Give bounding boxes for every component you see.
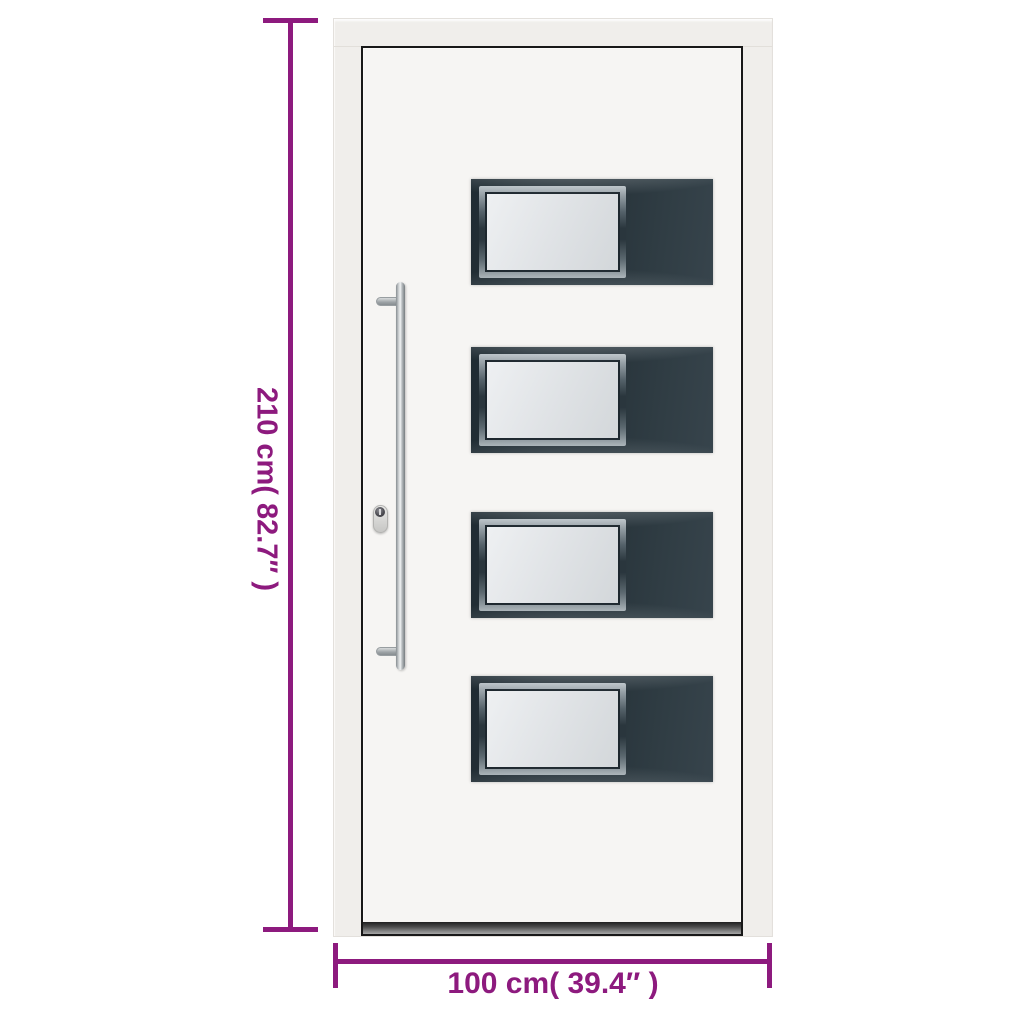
door-glass-panel xyxy=(471,179,713,285)
door-leaf xyxy=(361,46,743,936)
glass-frame xyxy=(479,186,626,278)
frosted-glass xyxy=(485,360,620,440)
glass-frame xyxy=(479,683,626,775)
door-glass-panel xyxy=(471,512,713,618)
width-dimension-label: 100 cm( 39.4″ ) xyxy=(333,967,773,1001)
product-image-canvas: { "diagram": { "height_dimension": { "la… xyxy=(0,0,1024,1024)
lock-cylinder-icon xyxy=(375,507,385,517)
door-handle-bar xyxy=(396,282,405,670)
door-threshold xyxy=(363,922,741,934)
height-dimension-bottom-cap xyxy=(263,927,318,932)
height-dimension-label: 210 cm( 82.7″ ) xyxy=(250,387,283,591)
frosted-glass xyxy=(485,192,620,272)
width-dimension-line xyxy=(334,959,771,964)
height-dimension-line xyxy=(288,20,293,930)
door-glass-panel xyxy=(471,347,713,453)
frosted-glass xyxy=(485,525,620,605)
stage: 210 cm( 82.7″ ) xyxy=(0,0,1024,1024)
frosted-glass xyxy=(485,689,620,769)
glass-frame xyxy=(479,519,626,611)
lock-escutcheon xyxy=(373,505,388,533)
glass-frame xyxy=(479,354,626,446)
door-glass-panel xyxy=(471,676,713,782)
door-frame xyxy=(333,18,773,937)
